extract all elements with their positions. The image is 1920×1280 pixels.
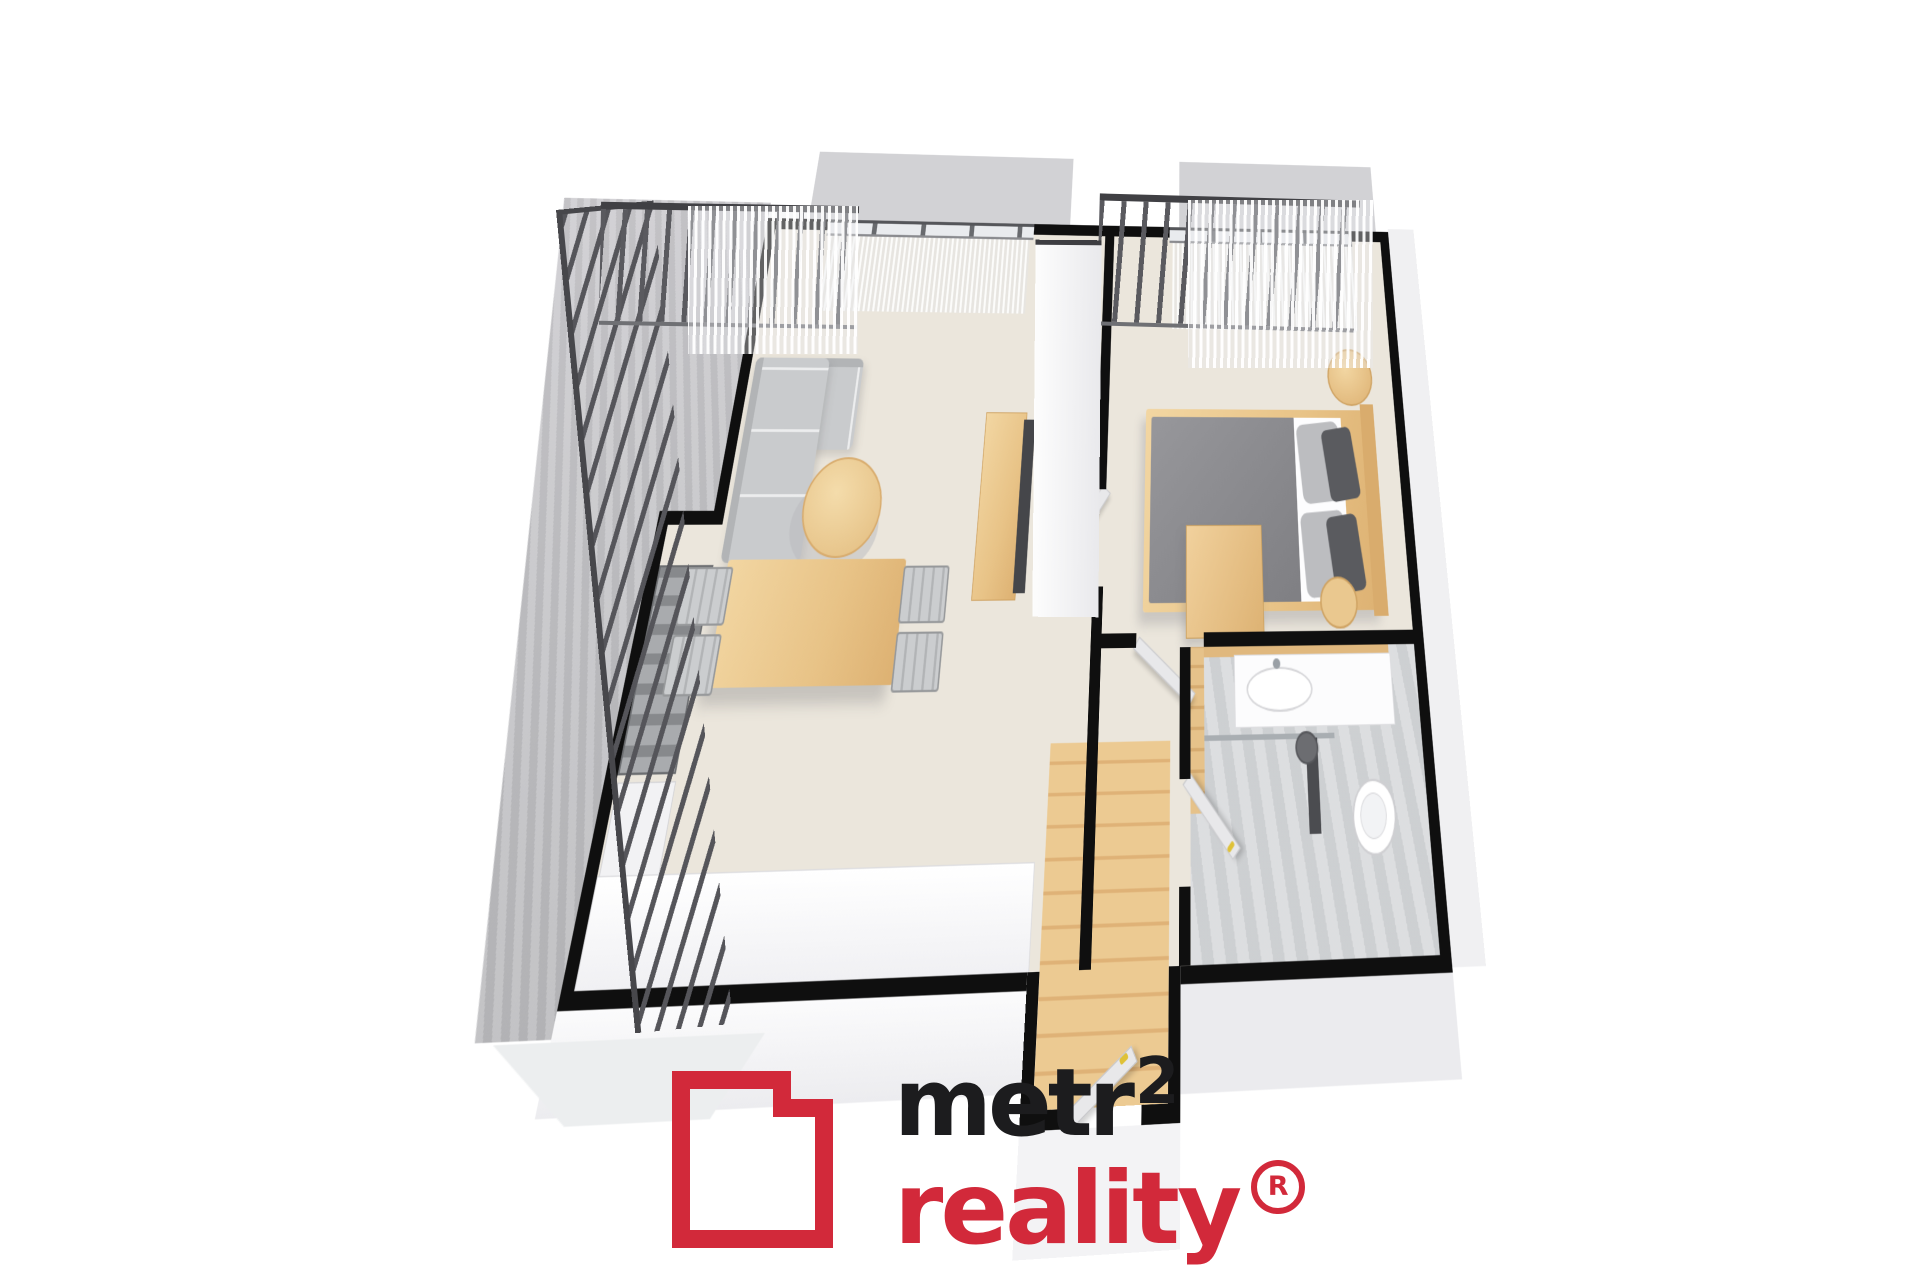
wall-hall-bathroom-lower: [1179, 886, 1191, 965]
door-handle: [1227, 840, 1235, 853]
wall-bedroom-hall: [1101, 633, 1136, 648]
logo-superscript: 2: [1135, 1045, 1180, 1119]
south-wall-face-bathroom: [1180, 973, 1462, 1095]
floor-plan-image: metr2 realityR: [0, 0, 1920, 1280]
dining-chair: [898, 565, 950, 623]
registered-trademark-icon: R: [1251, 1160, 1305, 1214]
sheer-curtain-living: [688, 206, 858, 354]
dresser: [1186, 525, 1265, 639]
partition-wall-face: [1032, 240, 1101, 618]
wall-hall-bathroom-upper: [1179, 647, 1190, 779]
faucet: [1273, 658, 1281, 669]
logo-reality: reality: [894, 1150, 1239, 1267]
wall-bedroom-bathroom: [1204, 630, 1414, 647]
sheer-curtain-bedroom: [1188, 200, 1373, 368]
logo-wordmark-line1: metr2: [894, 1056, 1180, 1152]
square-outline-icon: [672, 1071, 833, 1248]
metr2-reality-logo-icon: [672, 1071, 833, 1248]
dining-table: [706, 559, 906, 688]
logo-wordmark: metr: [894, 1049, 1131, 1158]
dining-chair: [890, 631, 943, 692]
logo-wordmark-line2: realityR: [894, 1158, 1305, 1260]
